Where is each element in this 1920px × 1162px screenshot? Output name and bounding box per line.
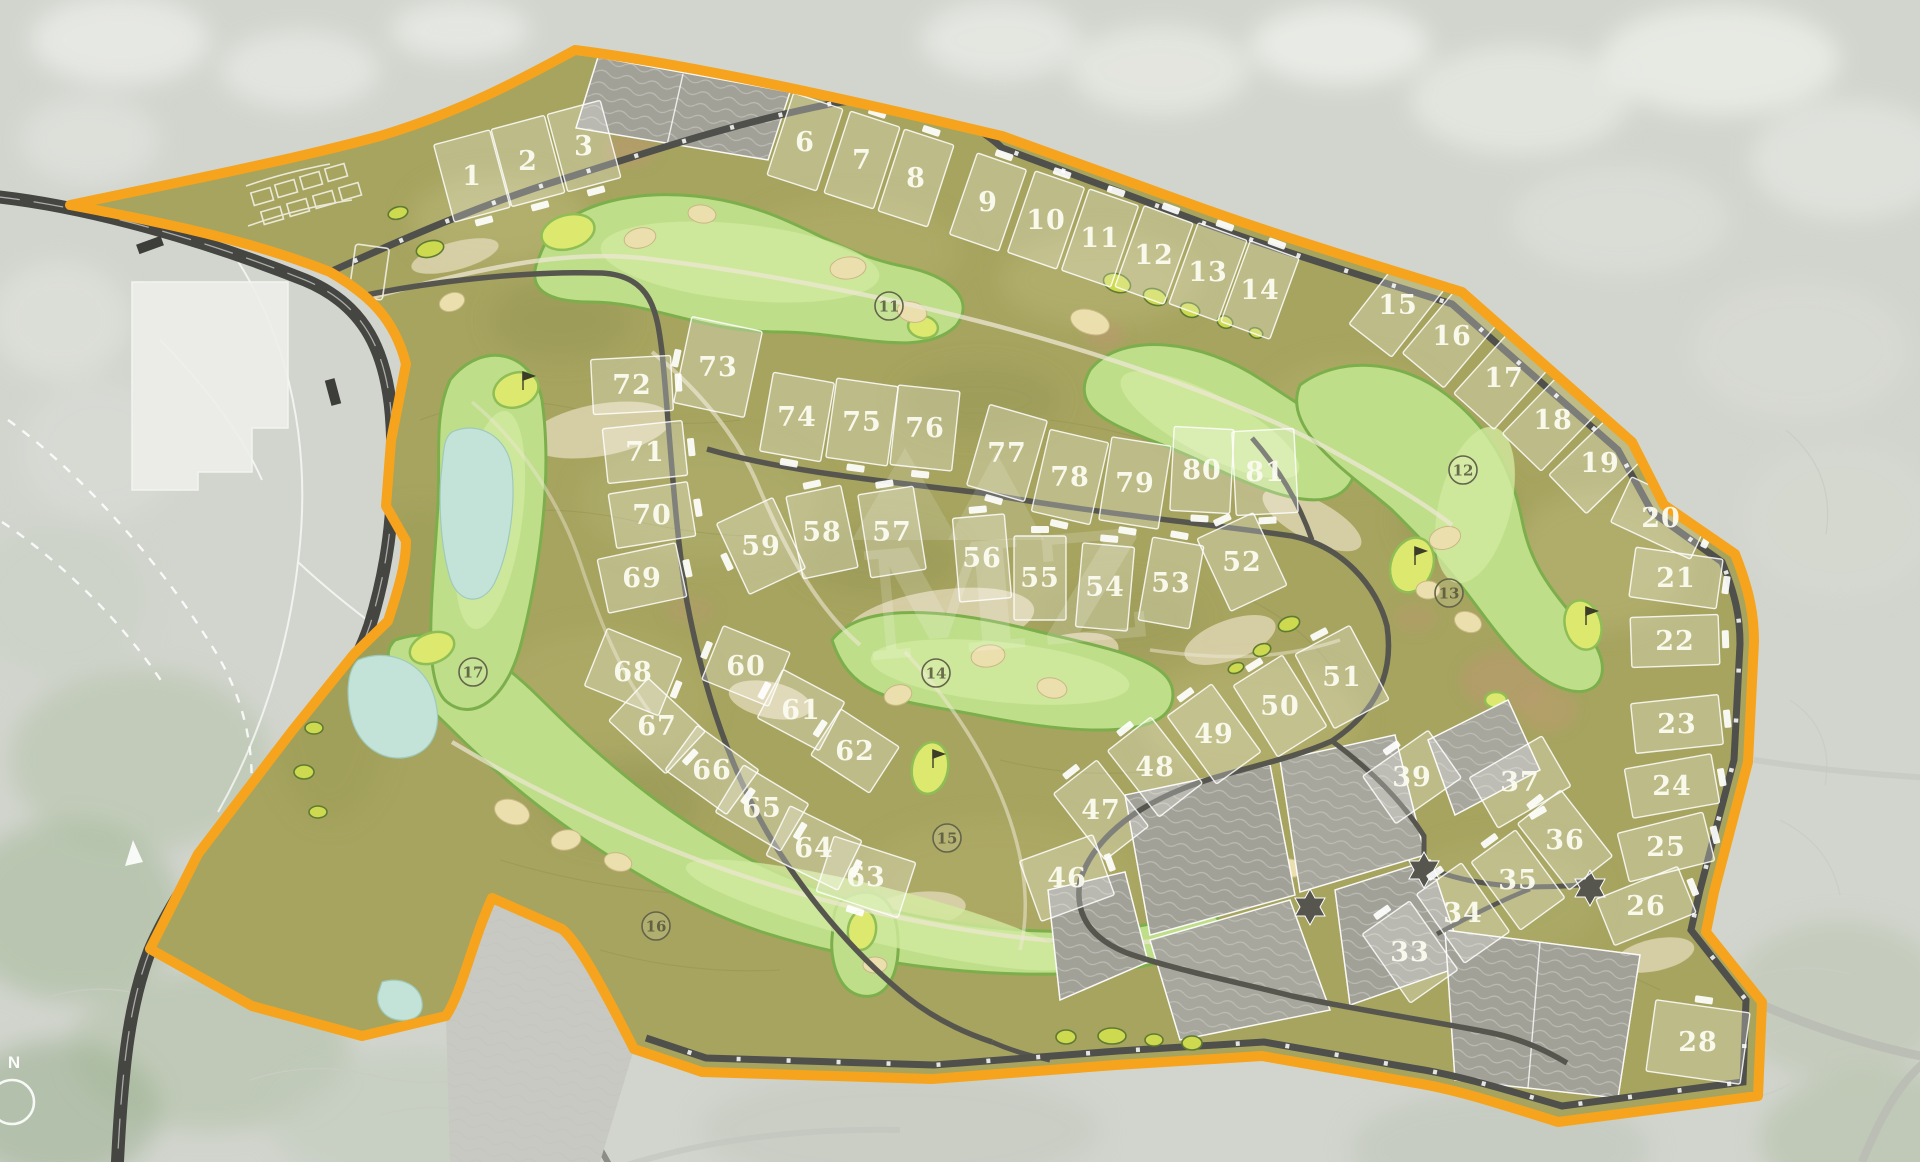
- compass-north-label: N: [8, 1053, 20, 1072]
- golf-hole-marker-17: 17: [459, 658, 487, 686]
- plot-number-64[interactable]: 64: [794, 833, 834, 864]
- golf-hole-marker-11: 11: [875, 292, 903, 320]
- golf-hole-marker-12: 12: [1449, 456, 1477, 484]
- plot-number-7[interactable]: 7: [852, 145, 872, 176]
- plot-number-72[interactable]: 72: [612, 370, 652, 401]
- plot-number-49[interactable]: 49: [1194, 719, 1234, 750]
- golf-hole-marker-13: 13: [1435, 579, 1463, 607]
- plot-number-14[interactable]: 14: [1240, 275, 1280, 306]
- plot-number-78[interactable]: 78: [1050, 462, 1090, 493]
- plot-number-35[interactable]: 35: [1498, 865, 1538, 896]
- plot-number-13[interactable]: 13: [1188, 257, 1228, 288]
- plot-number-65[interactable]: 65: [742, 793, 782, 824]
- plot-number-66[interactable]: 66: [692, 755, 732, 786]
- plot-number-48[interactable]: 48: [1135, 752, 1175, 783]
- plot-number-81[interactable]: 81: [1245, 457, 1285, 488]
- golf-hole-number: 15: [937, 830, 958, 848]
- plot-number-24[interactable]: 24: [1652, 771, 1692, 802]
- plot-number-59[interactable]: 59: [741, 531, 781, 562]
- plot-number-3[interactable]: 3: [574, 131, 594, 162]
- plot-number-63[interactable]: 63: [846, 862, 886, 893]
- golf-hole-number: 13: [1439, 585, 1460, 603]
- plot-number-69[interactable]: 69: [622, 563, 662, 594]
- plot-number-34[interactable]: 34: [1443, 898, 1483, 929]
- plot-number-50[interactable]: 50: [1260, 691, 1300, 722]
- plot-number-70[interactable]: 70: [632, 500, 672, 531]
- plot-number-8[interactable]: 8: [906, 163, 926, 194]
- plot-number-76[interactable]: 76: [905, 413, 945, 444]
- plot-number-21[interactable]: 21: [1656, 563, 1696, 594]
- plot-gate-marker: [1190, 514, 1208, 522]
- plot-number-22[interactable]: 22: [1655, 626, 1695, 657]
- plot-number-11[interactable]: 11: [1080, 223, 1120, 254]
- plot-number-26[interactable]: 26: [1626, 891, 1666, 922]
- plot-number-52[interactable]: 52: [1222, 547, 1262, 578]
- golf-hole-number: 11: [879, 298, 900, 316]
- plot-number-47[interactable]: 47: [1081, 795, 1121, 826]
- plot-number-12[interactable]: 12: [1134, 240, 1174, 271]
- plot-number-17[interactable]: 17: [1484, 363, 1524, 394]
- plot-number-37[interactable]: 37: [1500, 767, 1540, 798]
- plot-number-20[interactable]: 20: [1641, 503, 1681, 534]
- golf-hole-number: 12: [1453, 462, 1474, 480]
- plot-number-60[interactable]: 60: [726, 651, 766, 682]
- plot-number-23[interactable]: 23: [1657, 709, 1697, 740]
- plot-number-9[interactable]: 9: [978, 187, 998, 218]
- plot-number-19[interactable]: 19: [1580, 448, 1620, 479]
- plot-number-18[interactable]: 18: [1533, 405, 1573, 436]
- plot-number-68[interactable]: 68: [613, 657, 653, 688]
- plot-number-51[interactable]: 51: [1322, 662, 1362, 693]
- plot-number-36[interactable]: 36: [1545, 825, 1585, 856]
- plot-number-39[interactable]: 39: [1392, 762, 1432, 793]
- plot-number-10[interactable]: 10: [1026, 205, 1066, 236]
- plot-number-75[interactable]: 75: [842, 407, 882, 438]
- plot-number-79[interactable]: 79: [1115, 468, 1155, 499]
- plot-number-58[interactable]: 58: [802, 517, 842, 548]
- plot-number-2[interactable]: 2: [518, 146, 538, 177]
- plot-number-67[interactable]: 67: [637, 711, 677, 742]
- plot-number-25[interactable]: 25: [1646, 832, 1686, 863]
- golf-hole-marker-16: 16: [642, 912, 670, 940]
- golf-hole-number: 16: [646, 918, 667, 936]
- plot-number-80[interactable]: 80: [1182, 455, 1222, 486]
- plot-number-28[interactable]: 28: [1678, 1027, 1718, 1058]
- plot-number-16[interactable]: 16: [1432, 321, 1472, 352]
- plot-number-6[interactable]: 6: [795, 127, 815, 158]
- plot-number-1[interactable]: 1: [462, 161, 482, 192]
- plot-number-46[interactable]: 46: [1047, 863, 1087, 894]
- master-plan-map: 11121314151617 1236789101112131415161718…: [0, 0, 1920, 1162]
- plot-number-15[interactable]: 15: [1378, 290, 1418, 321]
- plot-gate-marker: [1258, 516, 1276, 524]
- golf-hole-number: 17: [463, 664, 484, 682]
- plot-number-73[interactable]: 73: [698, 352, 738, 383]
- plot-number-74[interactable]: 74: [777, 402, 817, 433]
- plot-number-61[interactable]: 61: [781, 695, 821, 726]
- plot-gate-marker: [1722, 630, 1730, 648]
- master-plan-page: 11121314151617 1236789101112131415161718…: [0, 0, 1920, 1162]
- watermark-text: MZ: [855, 495, 1165, 696]
- plot-number-62[interactable]: 62: [835, 736, 875, 767]
- plot-number-71[interactable]: 71: [625, 437, 665, 468]
- golf-hole-marker-15: 15: [933, 824, 961, 852]
- plot-number-33[interactable]: 33: [1390, 937, 1430, 968]
